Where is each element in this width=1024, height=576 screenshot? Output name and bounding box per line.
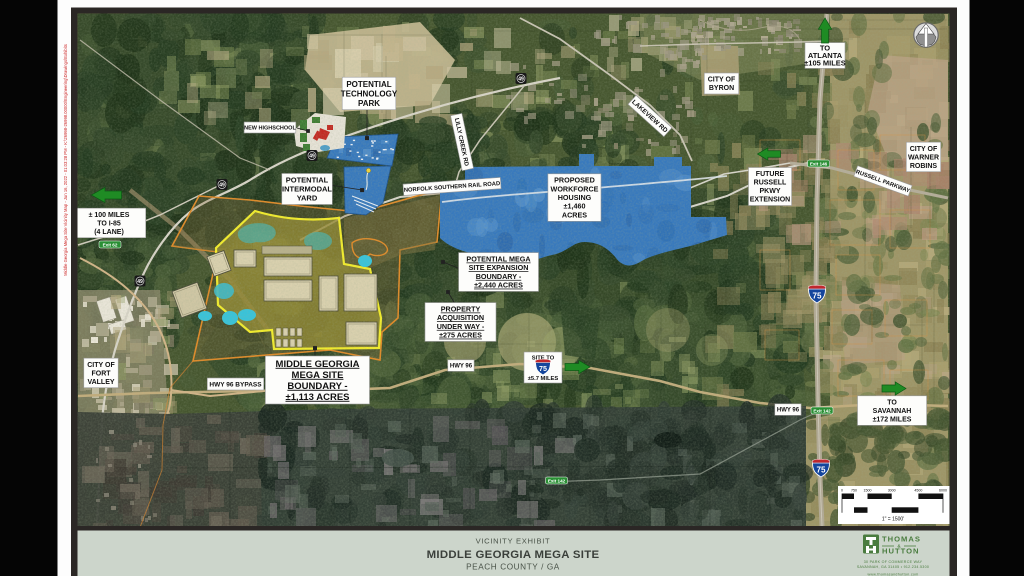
svg-text:49: 49 (518, 77, 524, 83)
svg-text:BOUNDARY -: BOUNDARY - (287, 381, 347, 392)
svg-text:ACQUISITION: ACQUISITION (437, 313, 484, 322)
svg-text:49: 49 (137, 279, 143, 285)
svg-text:TO: TO (887, 399, 897, 406)
svg-text:0: 0 (841, 489, 843, 493)
svg-text:NEW HIGHSCHOOL: NEW HIGHSCHOOL (244, 125, 296, 131)
svg-text:POTENTIAL: POTENTIAL (286, 176, 329, 185)
svg-text:CITY OF: CITY OF (910, 146, 938, 153)
svg-text:±5.7 MILES: ±5.7 MILES (528, 376, 559, 382)
svg-text:VALLEY: VALLEY (87, 379, 114, 386)
svg-text:TECHNOLOGY: TECHNOLOGY (341, 89, 398, 98)
svg-text:ACRES: ACRES (562, 210, 587, 219)
svg-text:6000: 6000 (939, 489, 947, 493)
svg-text:±105 MILES: ±105 MILES (804, 59, 846, 68)
svg-text:30 PARK OF COMMERCE WAY: 30 PARK OF COMMERCE WAY (864, 560, 923, 564)
svg-text:POTENTIAL MEGA: POTENTIAL MEGA (466, 255, 530, 264)
svg-text:CITY OF: CITY OF (708, 77, 736, 84)
svg-text:POTENTIAL: POTENTIAL (346, 80, 391, 89)
svg-text:PEACH COUNTY / GA: PEACH COUNTY / GA (466, 563, 560, 572)
svg-text:±275 ACRES: ±275 ACRES (439, 331, 482, 340)
svg-text:FORT: FORT (91, 370, 111, 377)
svg-text:750: 750 (851, 489, 857, 493)
svg-text:PROPERTY: PROPERTY (441, 305, 481, 314)
svg-text:(4 LANE): (4 LANE) (94, 229, 124, 236)
svg-text:SITE EXPANSION: SITE EXPANSION (469, 263, 529, 272)
svg-text:MIDDLE GEORGIA MEGA SITE: MIDDLE GEORGIA MEGA SITE (427, 549, 600, 561)
svg-text:PROPOSED: PROPOSED (554, 176, 595, 185)
svg-text:MEGA SITE: MEGA SITE (292, 370, 344, 381)
svg-text:49: 49 (309, 154, 315, 160)
svg-text:BYRON: BYRON (709, 85, 734, 92)
svg-text:± 100 MILES: ± 100 MILES (89, 212, 130, 219)
svg-text:Exit 142: Exit 142 (813, 408, 831, 413)
svg-text:75: 75 (817, 466, 826, 475)
svg-text:HOUSING: HOUSING (558, 193, 592, 202)
svg-text:1" = 1500': 1" = 1500' (882, 517, 904, 523)
svg-text:PARK: PARK (358, 99, 380, 108)
svg-text:TO I-85: TO I-85 (97, 220, 121, 227)
svg-text:Exit 62: Exit 62 (103, 242, 118, 247)
svg-text:BOUNDARY -: BOUNDARY - (476, 272, 522, 281)
svg-text:±2,440 ACRES: ±2,440 ACRES (474, 281, 523, 290)
svg-text:Exit 142: Exit 142 (548, 478, 566, 483)
svg-text:ROBINS: ROBINS (910, 163, 938, 170)
svg-text:WARNER: WARNER (908, 154, 939, 161)
svg-text:FUTURE: FUTURE (756, 171, 785, 178)
svg-text:VICINITY EXHIBIT: VICINITY EXHIBIT (476, 537, 551, 546)
svg-text:YARD: YARD (297, 194, 318, 203)
svg-text:±1,460: ±1,460 (564, 202, 586, 211)
svg-text:SAVANNAH, GA 31405 • 912.234: SAVANNAH, GA 31405 • 912.234.5300 (857, 565, 929, 569)
svg-text:HWY 96: HWY 96 (777, 408, 800, 414)
svg-text:75: 75 (813, 292, 822, 301)
svg-text:HWY 96: HWY 96 (450, 364, 473, 370)
svg-text:CITY OF: CITY OF (87, 362, 115, 369)
svg-text:EXTENSION: EXTENSION (750, 197, 790, 204)
svg-text:Middle Georgia Mega Site Vicin: Middle Georgia Mega Site Vicinity Map - … (63, 44, 68, 276)
svg-text:3000: 3000 (888, 489, 896, 493)
svg-text:4500: 4500 (914, 489, 922, 493)
svg-text:www.thomasandhutton.com: www.thomasandhutton.com (867, 573, 918, 576)
svg-text:UNDER WAY -: UNDER WAY - (437, 322, 485, 331)
svg-text:MIDDLE GEORGIA: MIDDLE GEORGIA (276, 359, 360, 370)
svg-text:RUSSELL: RUSSELL (754, 180, 787, 187)
svg-text:SAVANNAH: SAVANNAH (873, 408, 912, 415)
svg-text:INTERMODAL: INTERMODAL (282, 185, 332, 194)
svg-text:THOMAS: THOMAS (882, 535, 921, 544)
svg-text:49: 49 (219, 183, 225, 189)
svg-text:WORKFORCE: WORKFORCE (551, 184, 599, 193)
svg-text:±172 MILES: ±172 MILES (873, 416, 912, 423)
svg-text:HUTTON: HUTTON (882, 547, 920, 556)
svg-text:1500: 1500 (864, 489, 872, 493)
svg-text:75: 75 (539, 365, 547, 373)
svg-text:±1,113 ACRES: ±1,113 ACRES (285, 392, 349, 403)
svg-text:PKWY: PKWY (760, 188, 781, 195)
svg-text:HWY 96 BYPASS: HWY 96 BYPASS (209, 381, 262, 388)
svg-text:Exit 146: Exit 146 (810, 161, 828, 166)
